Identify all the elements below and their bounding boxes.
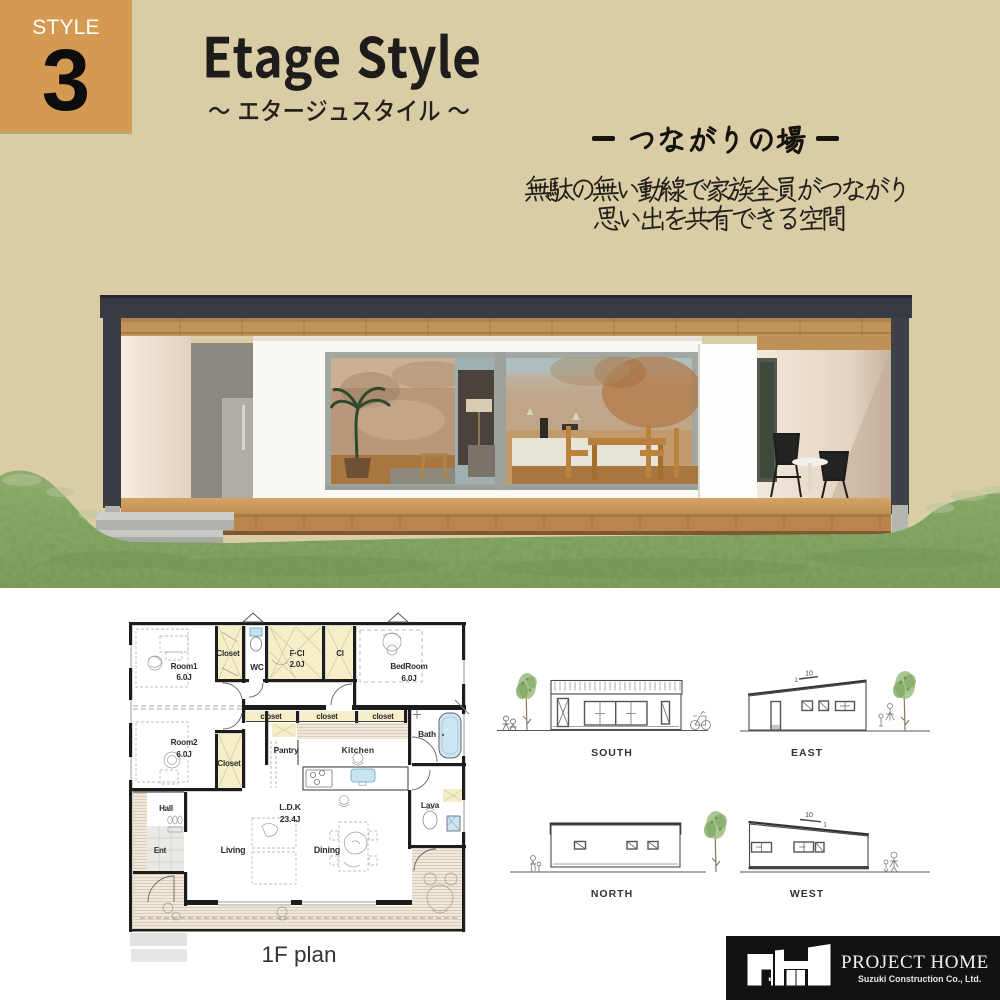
- svg-text:NORTH: NORTH: [591, 888, 633, 900]
- svg-text:10: 10: [805, 812, 813, 819]
- svg-text:2.0J: 2.0J: [290, 660, 305, 669]
- svg-text:Kitchen: Kitchen: [342, 745, 375, 755]
- svg-text:Hall: Hall: [159, 804, 173, 813]
- svg-text:1: 1: [794, 677, 798, 684]
- svg-text:SOUTH: SOUTH: [591, 747, 633, 759]
- svg-text:10: 10: [805, 671, 813, 678]
- svg-text:Pantry: Pantry: [274, 745, 299, 755]
- svg-text:WEST: WEST: [790, 888, 824, 900]
- svg-text:Lava: Lava: [421, 800, 440, 810]
- svg-text:1: 1: [823, 822, 827, 829]
- svg-text:Room1: Room1: [171, 662, 198, 671]
- svg-text:Room2: Room2: [171, 738, 198, 747]
- svg-text:closet: closet: [372, 712, 394, 721]
- svg-text:F·Cl: F·Cl: [290, 649, 305, 658]
- svg-text:WC: WC: [250, 662, 264, 672]
- svg-text:Living: Living: [221, 845, 246, 855]
- svg-text:Ent: Ent: [154, 846, 167, 855]
- svg-text:Closet: Closet: [216, 649, 240, 658]
- svg-text:closet: closet: [260, 712, 282, 721]
- svg-text:Bath: Bath: [418, 729, 436, 739]
- svg-text:Cl: Cl: [336, 649, 344, 658]
- svg-text:PROJECT HOME: PROJECT HOME: [841, 952, 989, 973]
- svg-text:23.4J: 23.4J: [280, 814, 301, 824]
- svg-text:6.0J: 6.0J: [176, 673, 191, 682]
- svg-text:Suzuki Construction Co., Ltd.: Suzuki Construction Co., Ltd.: [858, 974, 981, 984]
- svg-text:L.D.K: L.D.K: [279, 802, 301, 812]
- svg-text:BedRoom: BedRoom: [390, 662, 427, 671]
- svg-text:Dining: Dining: [314, 845, 340, 855]
- svg-text:6.0J: 6.0J: [401, 674, 416, 683]
- svg-text:EAST: EAST: [791, 747, 823, 759]
- svg-text:6.0J: 6.0J: [176, 750, 191, 759]
- svg-text:Closet: Closet: [217, 759, 241, 768]
- svg-text:closet: closet: [316, 712, 338, 721]
- svg-text:1F plan: 1F plan: [261, 942, 336, 967]
